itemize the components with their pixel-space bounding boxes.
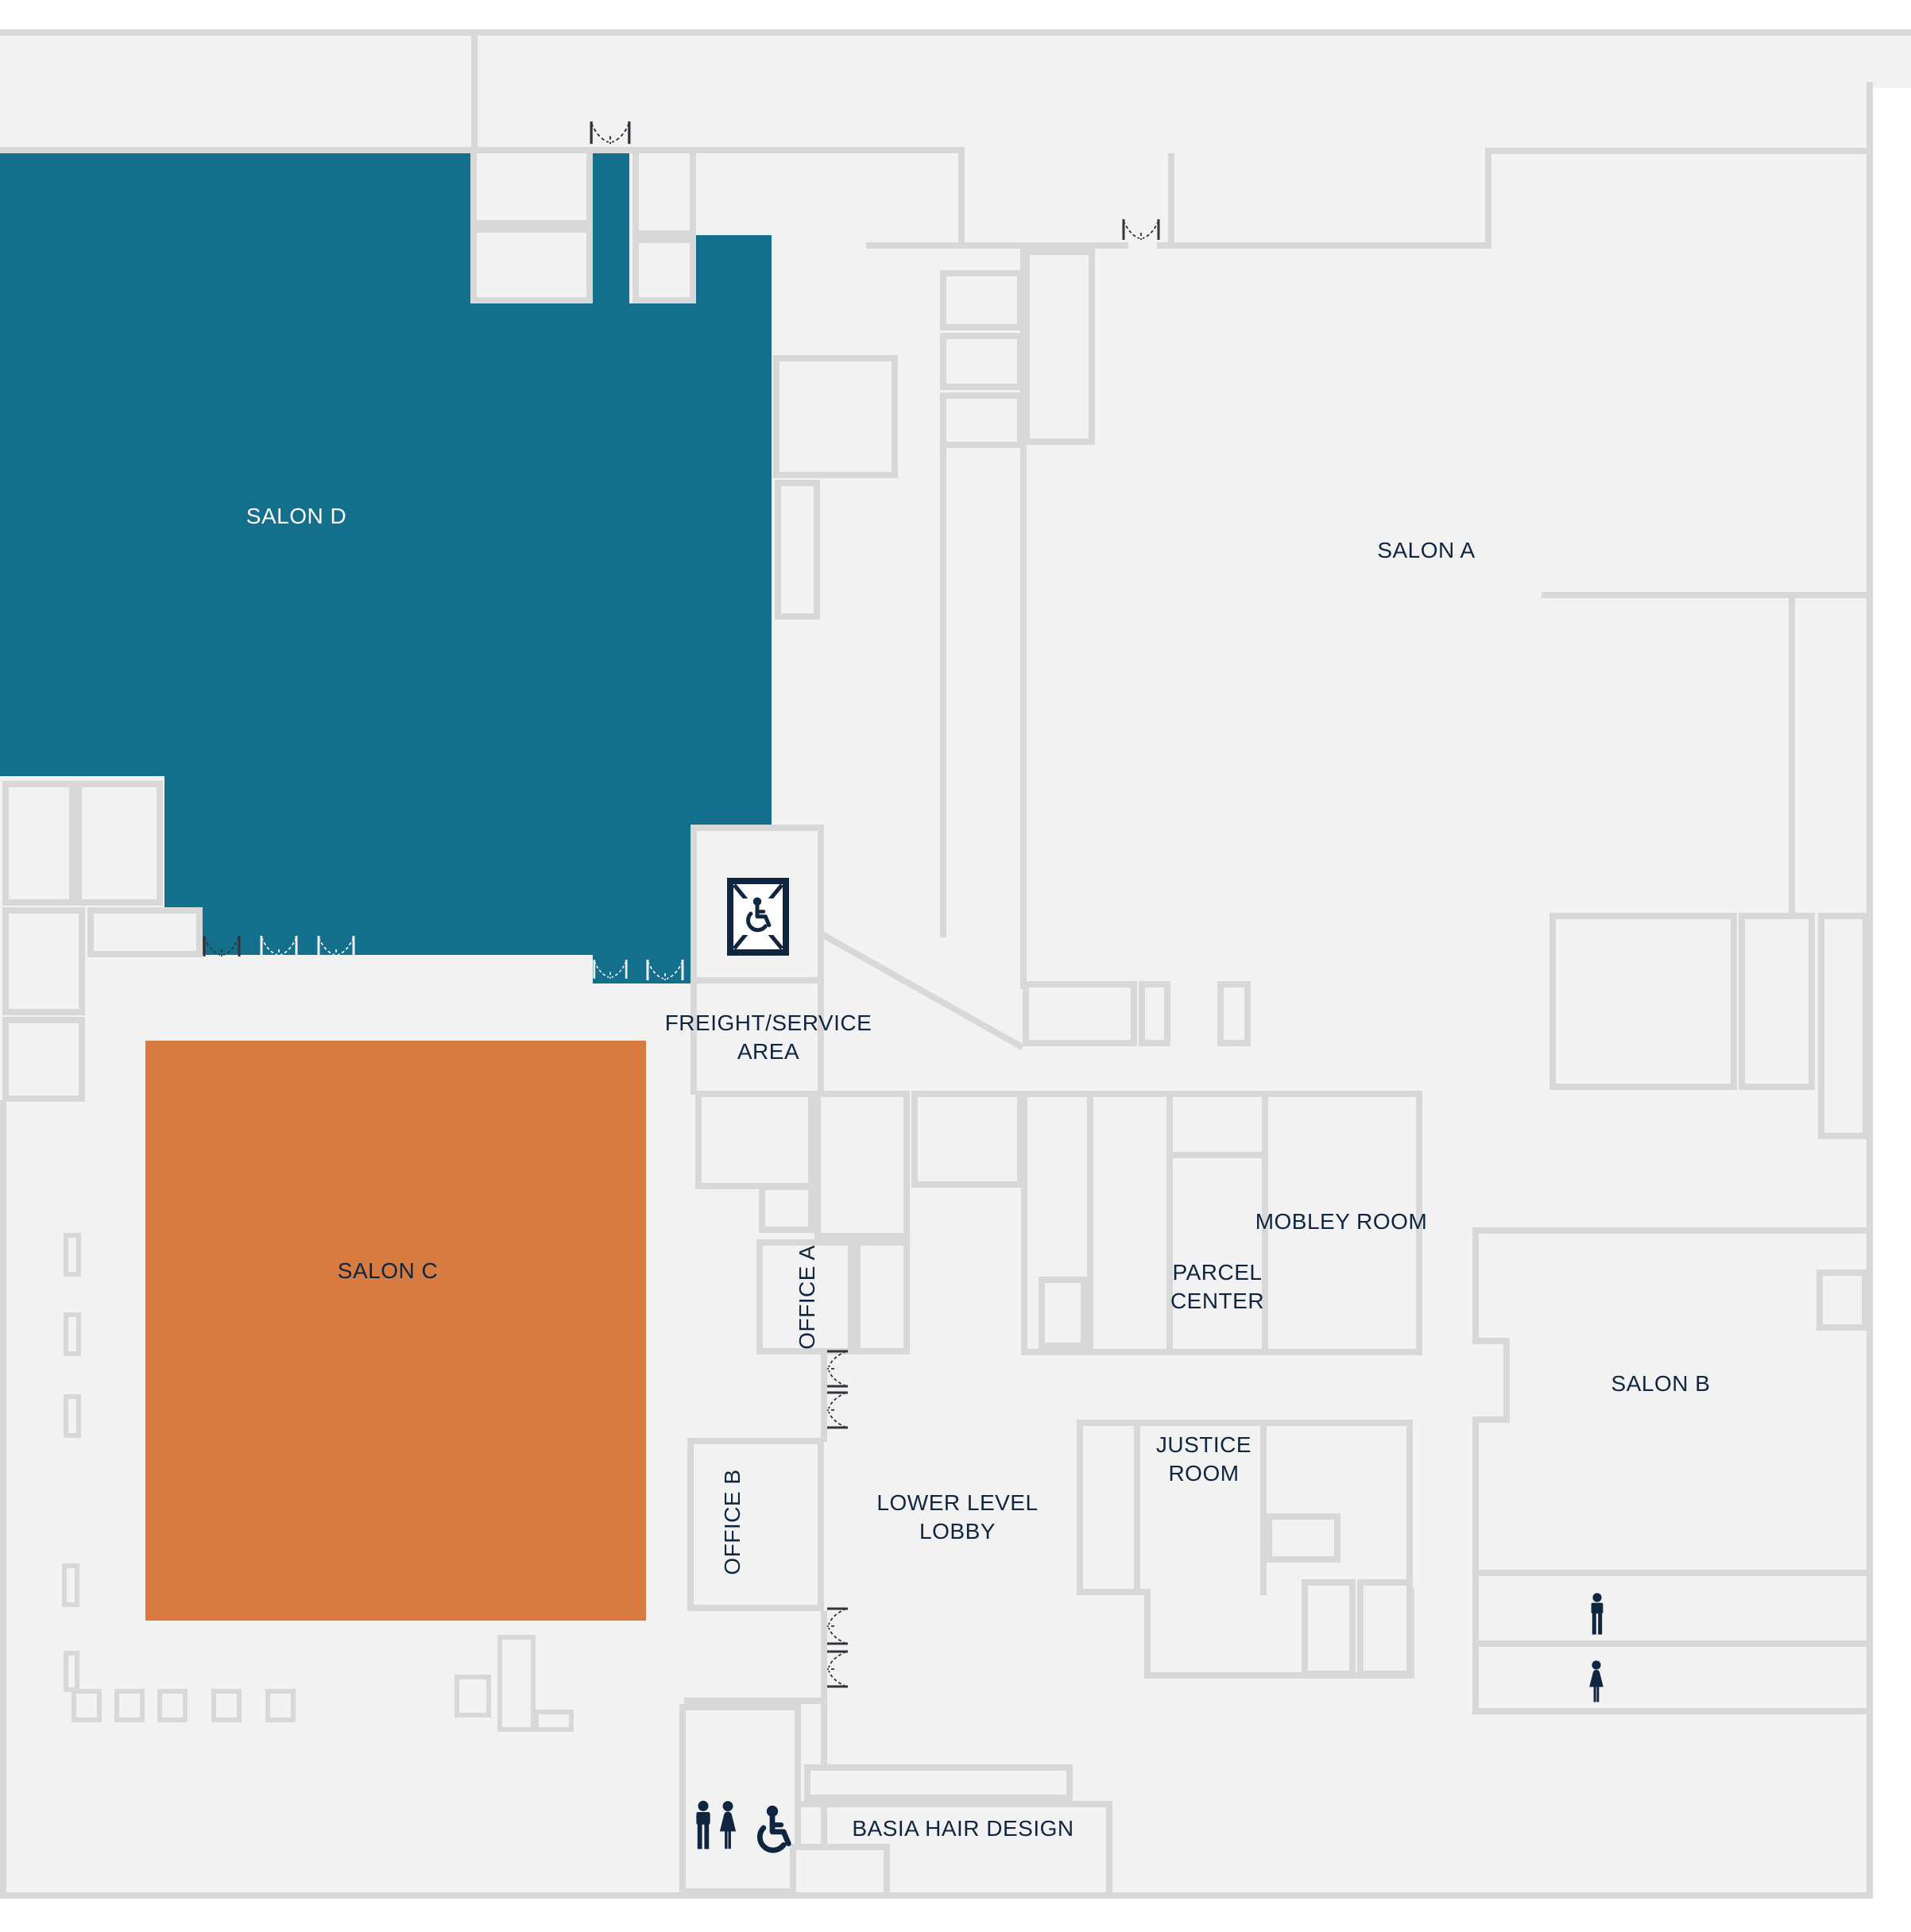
double-door-icon bbox=[1122, 216, 1160, 243]
woman-icon bbox=[1586, 1660, 1607, 1705]
wall bbox=[866, 242, 1128, 249]
wall bbox=[1157, 242, 1491, 249]
room bbox=[1739, 913, 1815, 1090]
floor-plan: SALON D SALON A SALON C SALON B FREIGHT/… bbox=[0, 0, 1911, 1932]
wall bbox=[1166, 1091, 1173, 1355]
fixture bbox=[64, 1651, 79, 1692]
room bbox=[804, 1764, 1073, 1801]
salon-b-label: SALON B bbox=[1611, 1370, 1711, 1398]
double-door-icon bbox=[317, 934, 355, 958]
wall bbox=[1170, 1152, 1268, 1158]
room bbox=[1549, 913, 1737, 1090]
room bbox=[1816, 1269, 1868, 1331]
lobby-line2: LOBBY bbox=[876, 1517, 1038, 1546]
wall bbox=[1021, 1349, 1422, 1355]
wall bbox=[1472, 1640, 1869, 1647]
floor-top-strip bbox=[1873, 29, 1911, 88]
fixture bbox=[265, 1689, 296, 1722]
wall bbox=[1472, 1416, 1479, 1576]
room bbox=[632, 237, 696, 303]
fixture bbox=[157, 1689, 188, 1722]
fixture bbox=[114, 1689, 145, 1722]
wall bbox=[1144, 1589, 1151, 1679]
stair-fixture bbox=[455, 1675, 491, 1718]
room bbox=[632, 147, 696, 237]
freight-line1: FREIGHT/SERVICE bbox=[665, 1009, 872, 1037]
room bbox=[695, 1091, 814, 1189]
double-door-icon bbox=[590, 119, 631, 146]
room bbox=[940, 270, 1023, 330]
restroom-room bbox=[679, 1704, 801, 1895]
office-b-label: OFFICE B bbox=[720, 1469, 745, 1575]
wall bbox=[1789, 598, 1795, 919]
wall bbox=[958, 153, 965, 249]
justice-room-label: JUSTICE ROOM bbox=[1156, 1431, 1251, 1488]
wheelchair-icon bbox=[749, 1805, 795, 1856]
justice-line2: ROOM bbox=[1156, 1459, 1251, 1488]
room bbox=[1266, 1513, 1340, 1563]
room bbox=[775, 480, 820, 620]
fixture bbox=[72, 1689, 102, 1722]
salon-d-area-right2 bbox=[696, 235, 772, 825]
salon-c-area bbox=[145, 1041, 646, 1621]
room bbox=[2, 907, 85, 1015]
room bbox=[1039, 1277, 1087, 1349]
double-door-icon bbox=[818, 1657, 857, 1681]
room bbox=[1023, 981, 1137, 1046]
freight-elevator-icon bbox=[726, 877, 790, 956]
room bbox=[759, 1184, 814, 1233]
wall bbox=[1168, 153, 1174, 249]
wall bbox=[790, 1801, 1112, 1807]
double-door-icon bbox=[593, 958, 628, 980]
wall bbox=[1406, 1420, 1413, 1595]
room bbox=[940, 392, 1023, 448]
wall bbox=[940, 445, 946, 937]
salon-a-label: SALON A bbox=[1377, 536, 1475, 565]
wall bbox=[684, 1698, 827, 1704]
office-b-room bbox=[687, 1438, 824, 1611]
wall bbox=[1134, 1420, 1140, 1595]
wall bbox=[1485, 148, 1870, 154]
salon-d-area-right bbox=[629, 303, 696, 983]
wall bbox=[1485, 154, 1491, 249]
room bbox=[2, 1017, 85, 1102]
wall bbox=[1260, 1420, 1267, 1595]
room bbox=[854, 1239, 910, 1354]
double-door-icon bbox=[260, 934, 298, 958]
wall bbox=[1077, 1420, 1413, 1426]
double-door-icon bbox=[818, 1614, 857, 1638]
office-a-label: OFFICE A bbox=[795, 1245, 820, 1350]
room bbox=[87, 907, 203, 957]
fixture bbox=[64, 1312, 81, 1356]
double-door-icon bbox=[646, 958, 684, 982]
double-door-icon bbox=[203, 934, 241, 958]
room bbox=[2, 781, 75, 906]
room bbox=[1139, 981, 1170, 1046]
man-icon bbox=[692, 1800, 714, 1853]
room bbox=[773, 355, 898, 478]
mobley-room-label: MOBLEY ROOM bbox=[1255, 1207, 1428, 1236]
wall bbox=[1472, 1227, 1870, 1234]
fixture bbox=[211, 1689, 242, 1722]
wall bbox=[1503, 1338, 1510, 1416]
wall bbox=[1077, 1420, 1083, 1595]
lobby-line1: LOWER LEVEL bbox=[876, 1489, 1038, 1517]
fixture bbox=[64, 1233, 81, 1277]
double-door-icon bbox=[818, 1398, 857, 1422]
double-door-icon bbox=[818, 1357, 857, 1381]
basia-hair-design-label: BASIA HAIR DESIGN bbox=[852, 1814, 1073, 1843]
parcel-center-label: PARCEL CENTER bbox=[1170, 1258, 1264, 1316]
room bbox=[1302, 1579, 1356, 1677]
fixture bbox=[62, 1563, 79, 1607]
room bbox=[814, 1091, 910, 1239]
wall bbox=[0, 29, 1911, 36]
justice-line1: JUSTICE bbox=[1156, 1431, 1251, 1459]
wall bbox=[1472, 1570, 1869, 1576]
parcel-line2: CENTER bbox=[1170, 1287, 1264, 1316]
room bbox=[75, 781, 163, 906]
man-icon bbox=[1588, 1593, 1607, 1637]
freight-line2: AREA bbox=[665, 1037, 872, 1066]
room bbox=[790, 1844, 890, 1899]
room bbox=[1217, 981, 1251, 1046]
room bbox=[1023, 249, 1095, 445]
room bbox=[1818, 913, 1869, 1139]
salon-d-label: SALON D bbox=[246, 502, 346, 531]
lower-level-lobby-label: LOWER LEVEL LOBBY bbox=[876, 1489, 1038, 1546]
parcel-line1: PARCEL bbox=[1170, 1258, 1264, 1287]
wall bbox=[1106, 1801, 1112, 1899]
room bbox=[1357, 1579, 1413, 1677]
room bbox=[911, 1091, 1023, 1188]
salon-c-label: SALON C bbox=[338, 1257, 438, 1285]
salon-d-corridor bbox=[593, 147, 629, 983]
wall bbox=[471, 36, 478, 147]
wall bbox=[1472, 1708, 1869, 1714]
freight-service-label: FREIGHT/SERVICE AREA bbox=[665, 1009, 872, 1066]
wall bbox=[1021, 1091, 1422, 1097]
fixture bbox=[64, 1394, 81, 1438]
wall bbox=[1542, 592, 1870, 598]
stair-fixture bbox=[534, 1710, 574, 1732]
woman-icon bbox=[716, 1800, 740, 1853]
wall bbox=[0, 1100, 6, 1899]
room bbox=[470, 226, 593, 303]
wall bbox=[1087, 1091, 1093, 1355]
room bbox=[940, 333, 1023, 390]
stair-fixture bbox=[497, 1635, 536, 1732]
wall bbox=[1472, 1234, 1479, 1338]
room bbox=[470, 147, 593, 226]
wall bbox=[0, 1892, 1873, 1899]
